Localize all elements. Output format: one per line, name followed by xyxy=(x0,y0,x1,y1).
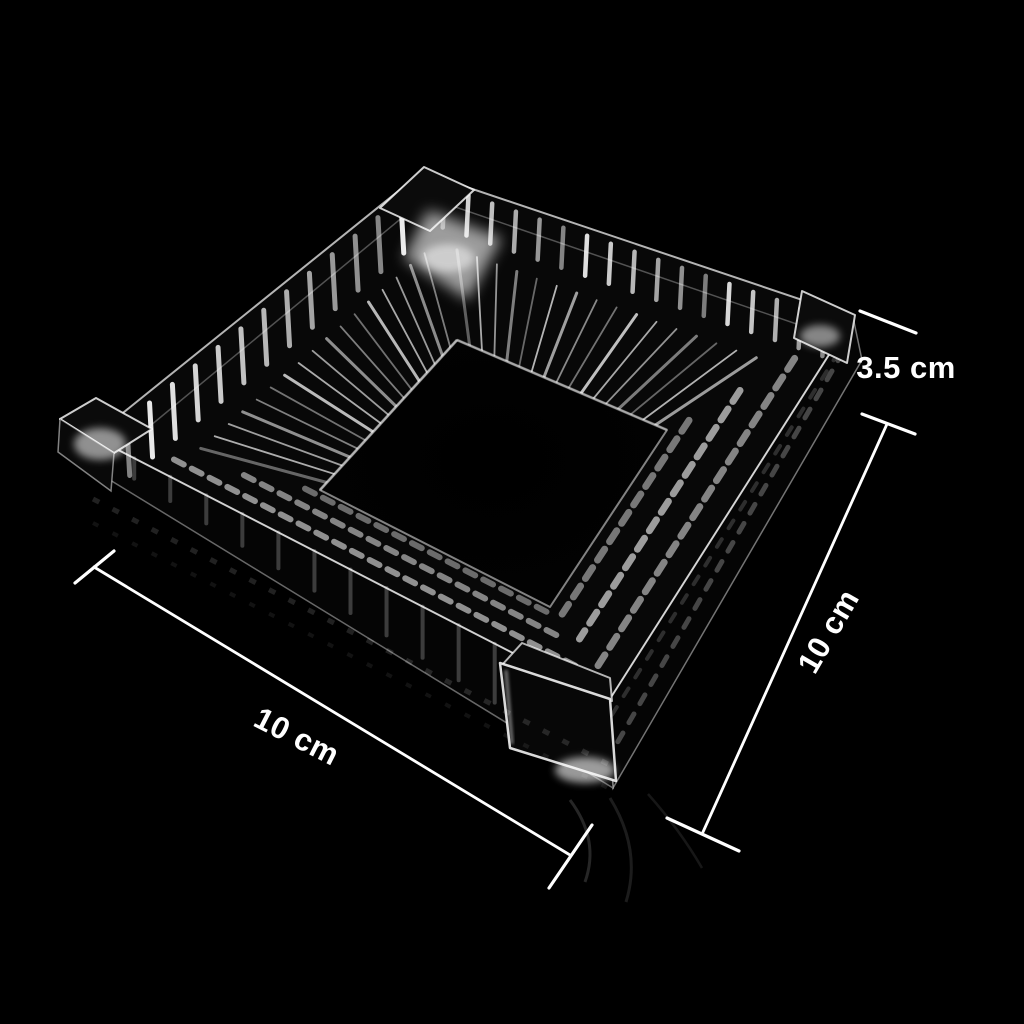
tooth xyxy=(775,300,777,340)
left-corner-glow xyxy=(74,428,126,460)
far-corner-hotspot xyxy=(422,244,474,272)
tooth xyxy=(751,292,753,332)
tooth xyxy=(218,347,221,401)
tooth xyxy=(585,236,587,276)
tooth xyxy=(332,255,335,309)
height-tick-top xyxy=(860,311,916,333)
tooth xyxy=(172,384,175,438)
side-tick-end xyxy=(667,818,739,851)
ashtray-photo-illustration: 3.5 cm 10 cm 10 cm xyxy=(0,0,1024,1024)
tooth xyxy=(633,252,635,292)
height-dimension-label: 3.5 cm xyxy=(856,350,956,385)
height-tick-bottom xyxy=(862,414,915,434)
tooth xyxy=(561,228,563,268)
tooth xyxy=(378,218,381,272)
tooth xyxy=(656,260,658,300)
tooth xyxy=(195,366,198,420)
tooth xyxy=(704,276,706,316)
tooth xyxy=(680,268,682,308)
tooth xyxy=(727,284,729,324)
tooth xyxy=(355,236,358,290)
tooth xyxy=(241,329,244,383)
tooth xyxy=(514,212,516,252)
tooth xyxy=(609,244,611,284)
tooth xyxy=(309,273,312,327)
reflection-streak xyxy=(610,798,631,902)
side-dimension-label: 10 cm xyxy=(791,583,867,679)
tooth xyxy=(264,310,267,364)
tooth xyxy=(538,220,540,260)
product-photo-stage: 3.5 cm 10 cm 10 cm xyxy=(0,0,1024,1024)
right-corner-glow xyxy=(800,325,840,347)
tooth xyxy=(287,292,290,346)
